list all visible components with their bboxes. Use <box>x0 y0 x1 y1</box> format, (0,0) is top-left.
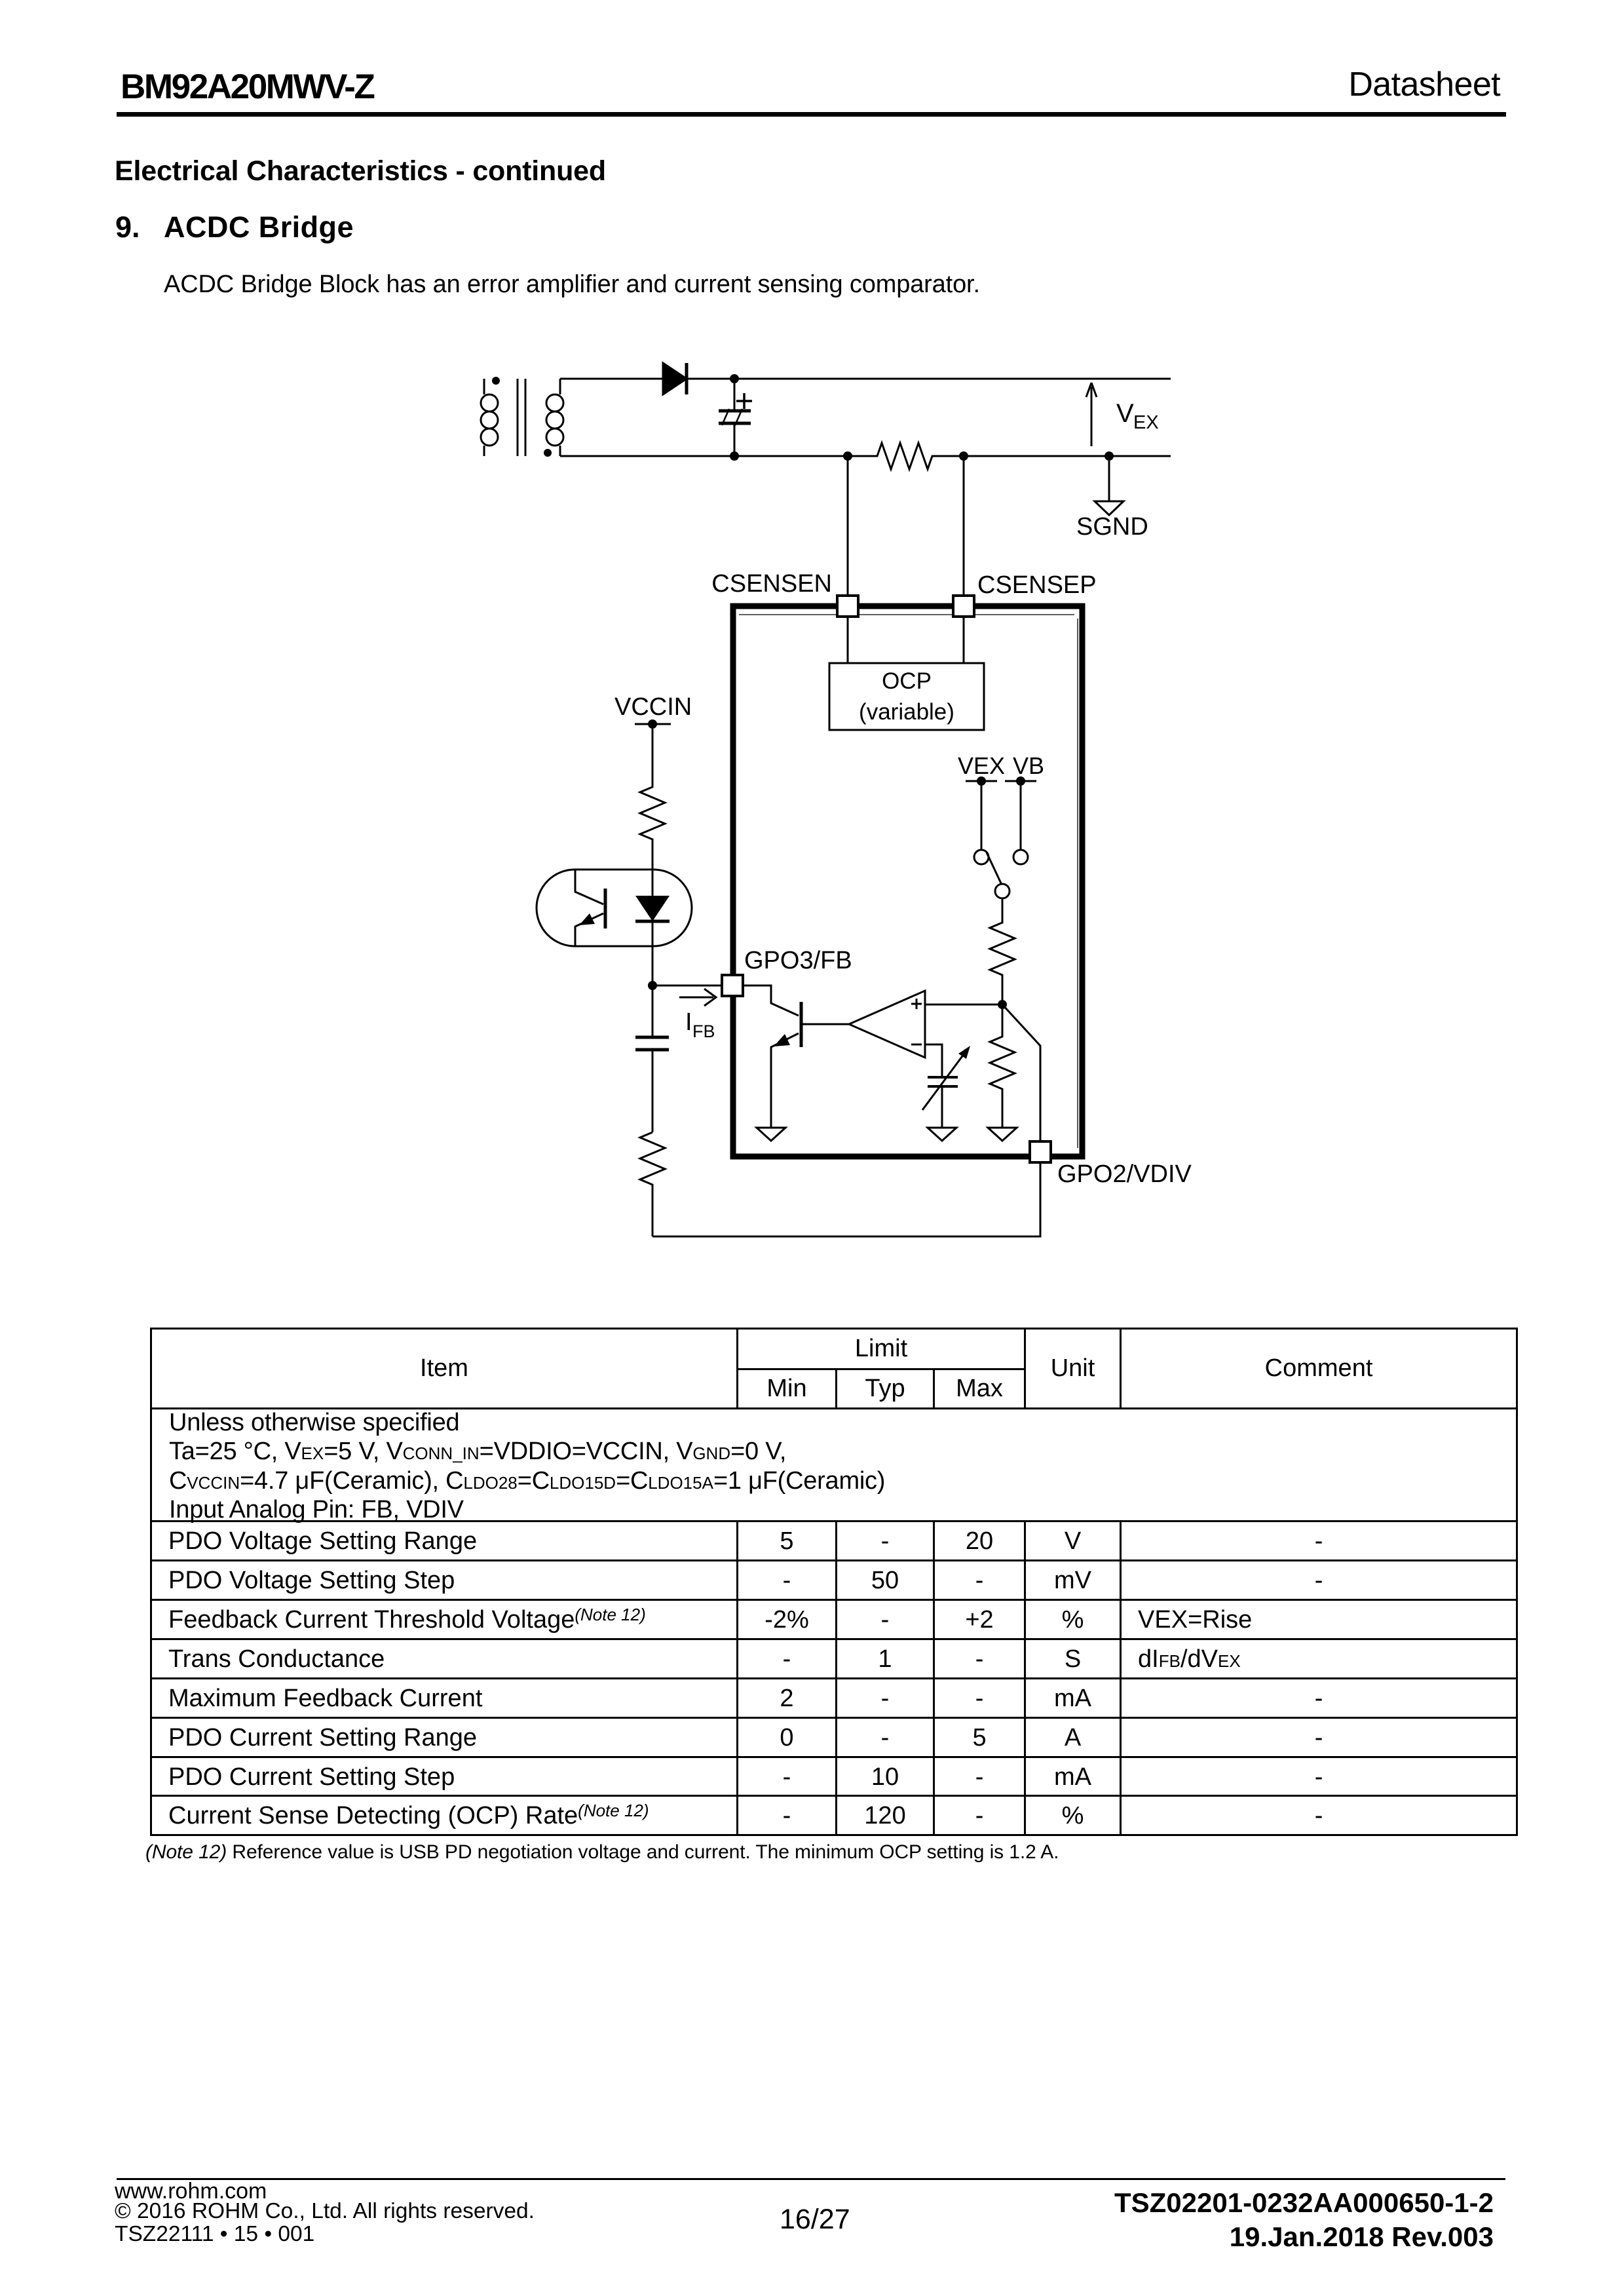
svg-text:CSENSEP: CSENSEP <box>977 571 1097 599</box>
svg-text:CSENSEN: CSENSEN <box>711 570 832 598</box>
svg-text:OCP: OCP <box>882 668 932 694</box>
svg-text:SGND: SGND <box>1076 513 1148 541</box>
svg-text:EX: EX <box>1133 412 1159 433</box>
svg-text:(variable): (variable) <box>859 699 954 725</box>
svg-text:GPO2/VDIV: GPO2/VDIV <box>1057 1160 1192 1188</box>
svg-text:I: I <box>685 1008 692 1036</box>
svg-text:VCCIN: VCCIN <box>614 693 692 721</box>
svg-text:V: V <box>1116 399 1134 428</box>
svg-text:GPO3/FB: GPO3/FB <box>744 947 852 974</box>
svg-text:FB: FB <box>692 1022 715 1041</box>
svg-text:VB: VB <box>1013 752 1044 779</box>
svg-text:VEX: VEX <box>958 752 1005 779</box>
